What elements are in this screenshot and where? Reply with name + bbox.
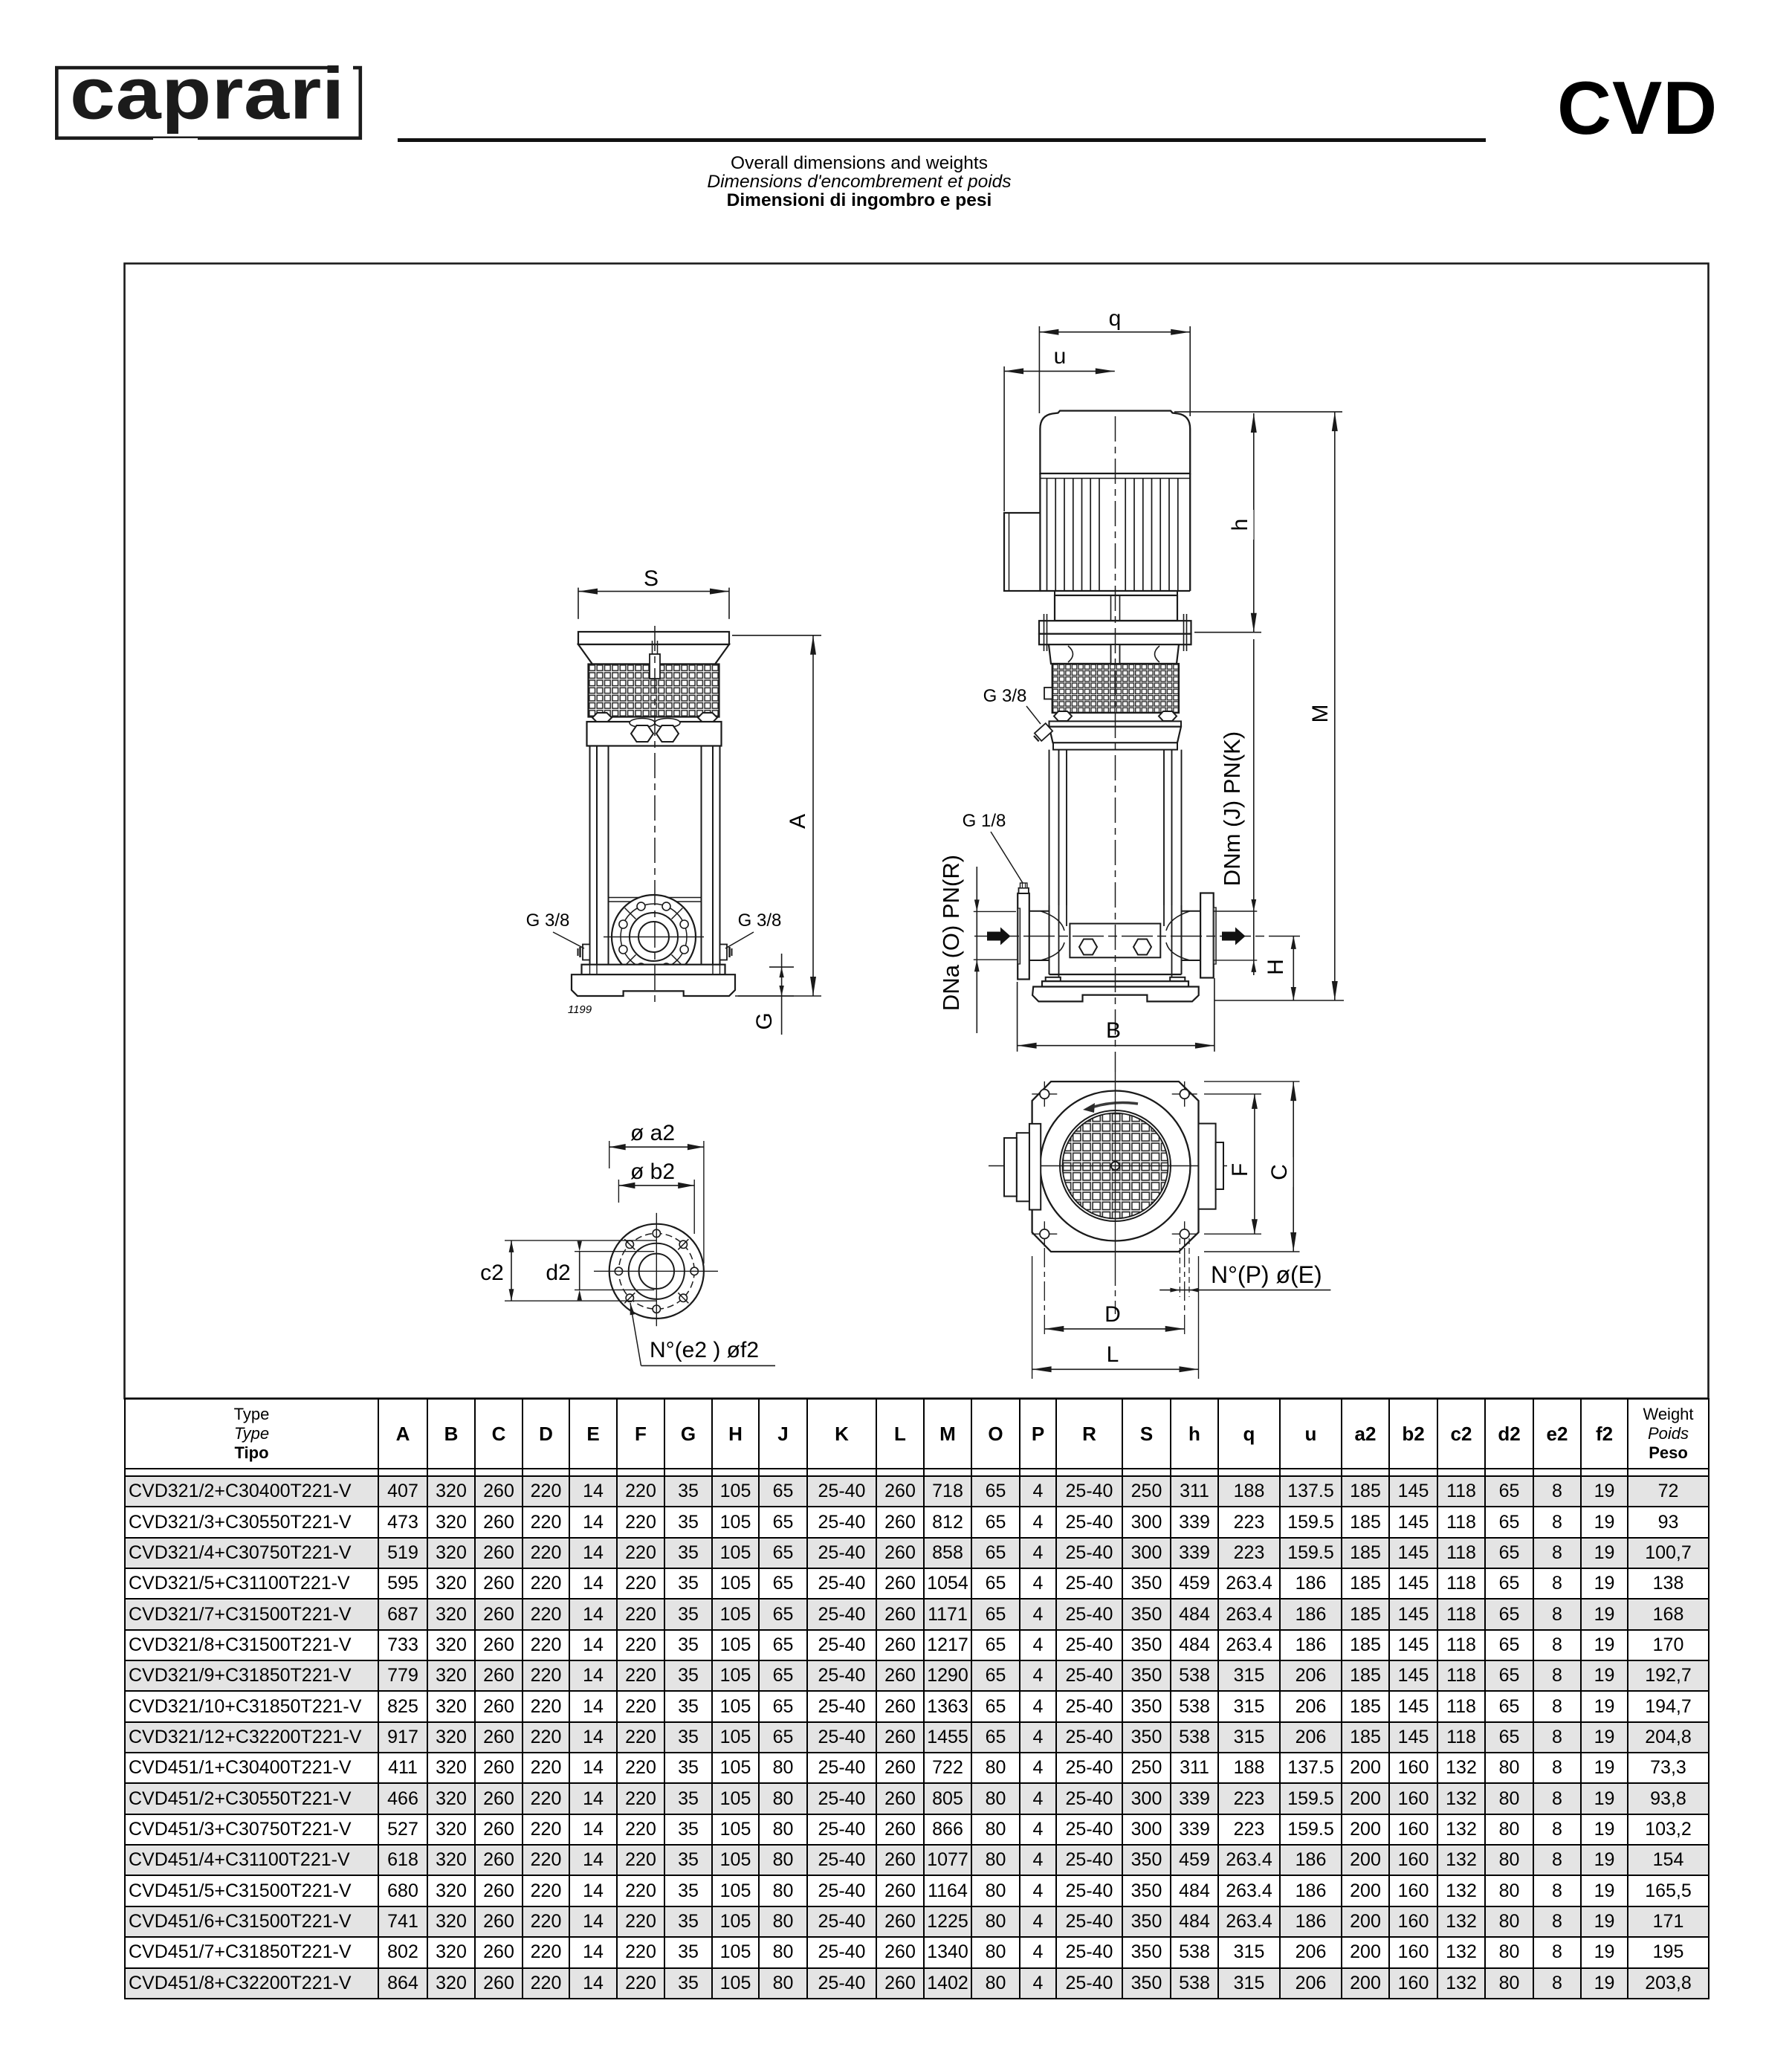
svg-text:A: A <box>786 814 810 829</box>
svg-text:S: S <box>644 566 659 591</box>
svg-text:1199: 1199 <box>568 1003 592 1016</box>
svg-text:h: h <box>1228 519 1252 531</box>
svg-text:N°(P) ø(E): N°(P) ø(E) <box>1211 1261 1322 1288</box>
svg-text:G 1/8: G 1/8 <box>963 811 1006 831</box>
svg-text:DNm (J) PN(K): DNm (J) PN(K) <box>1219 731 1245 886</box>
svg-text:D: D <box>1104 1302 1121 1327</box>
svg-text:DNa (O) PN(R): DNa (O) PN(R) <box>938 855 964 1011</box>
svg-text:G 3/8: G 3/8 <box>983 686 1027 706</box>
svg-text:G 3/8: G 3/8 <box>526 911 570 931</box>
svg-text:c2: c2 <box>480 1261 504 1285</box>
svg-text:L: L <box>1107 1342 1119 1367</box>
svg-text:ø a2: ø a2 <box>630 1121 675 1145</box>
svg-text:B: B <box>1106 1018 1121 1043</box>
svg-text:N°(e2 ) øf2: N°(e2 ) øf2 <box>650 1338 759 1362</box>
svg-text:F: F <box>1228 1163 1252 1177</box>
svg-text:q: q <box>1109 306 1122 331</box>
svg-text:d2: d2 <box>546 1261 570 1285</box>
svg-text:H: H <box>1264 959 1288 975</box>
svg-text:C: C <box>1267 1164 1292 1180</box>
svg-text:G: G <box>752 1012 777 1029</box>
svg-text:u: u <box>1054 344 1067 369</box>
svg-text:ø b2: ø b2 <box>630 1159 675 1184</box>
svg-text:G 3/8: G 3/8 <box>738 911 782 931</box>
svg-text:M: M <box>1308 705 1333 723</box>
